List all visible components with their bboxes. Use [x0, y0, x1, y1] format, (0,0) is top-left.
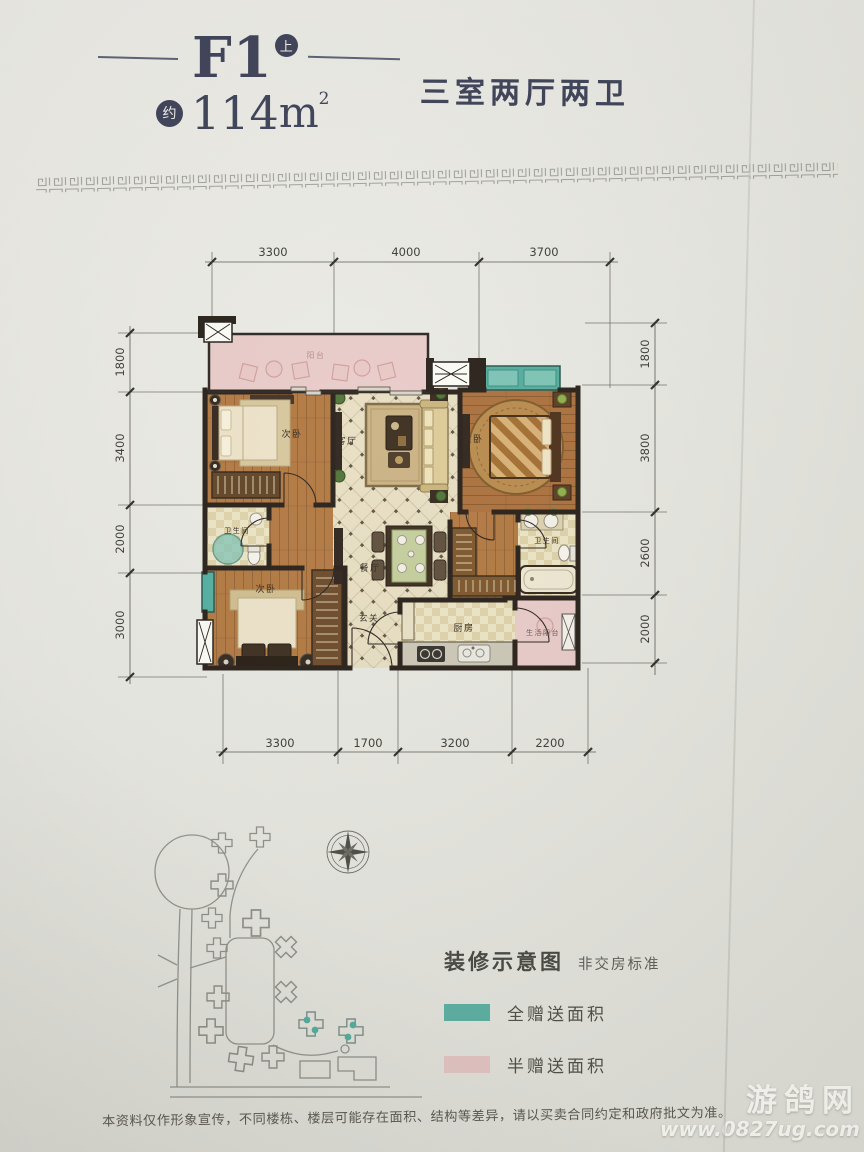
dim-right-2: 3800 [638, 433, 652, 462]
dim-right-1: 1800 [638, 339, 652, 368]
dim-left-4: 3000 [113, 610, 127, 639]
label-bath-left: 卫生间 [224, 526, 250, 535]
dim-left-2: 3400 [113, 433, 127, 462]
legend: 装修示意图 非交房标准 全赠送面积 半赠送面积 [444, 946, 661, 1104]
watermark-site-url: www.0827ug.com [660, 1118, 860, 1140]
dim-top-1: 3300 [258, 245, 287, 259]
label-bath-right: 卫生间 [534, 536, 560, 545]
dim-right-3: 2600 [638, 538, 652, 567]
label-master: 主卧 [462, 433, 483, 445]
flyer-page: F1 上 约 114 m 2 三室两厅两卫 [0, 0, 864, 1152]
legend-item-full-gift: 全赠送面积 [444, 1000, 661, 1025]
highlighted-buildings [299, 1012, 363, 1043]
dim-bottom-3: 3200 [440, 736, 469, 750]
legend-item-label: 半赠送面积 [507, 1052, 607, 1077]
legend-subtitle: 非交房标准 [578, 953, 661, 974]
full-gift-swatch [444, 1004, 490, 1021]
legend-title: 装修示意图 [444, 946, 564, 976]
label-foyer: 玄关 [359, 613, 379, 624]
half-gift-swatch [444, 1056, 490, 1073]
label-service-balcony: 生活阳台 [526, 628, 560, 637]
watermark-site-name: 游鸽网 [660, 1084, 860, 1118]
label-bedroom-bottom: 次卧 [255, 583, 276, 595]
balcony-floor [209, 334, 428, 392]
left-gift-strip [202, 572, 214, 612]
dim-left-1: 1800 [113, 347, 127, 376]
dim-bottom-4: 2200 [535, 736, 564, 750]
meander-border [36, 162, 838, 192]
dim-bottom-2: 1700 [353, 736, 382, 750]
legend-header: 装修示意图 非交房标准 [444, 946, 661, 976]
legend-item-half-gift: 半赠送面积 [444, 1052, 661, 1077]
floor-plan-canvas: 3300 4000 3700 3300 1700 3200 2200 1800 … [0, 0, 864, 1152]
label-kitchen: 厨房 [453, 622, 474, 634]
dim-top-2: 4000 [391, 245, 420, 259]
label-bedroom-top: 次卧 [281, 428, 302, 440]
compass-icon [327, 831, 369, 873]
label-balcony: 阳台 [307, 350, 326, 360]
label-living: 客厅 [336, 435, 357, 447]
dim-bottom-1: 3300 [265, 736, 294, 750]
dim-left-3: 2000 [113, 524, 127, 553]
legend-item-label: 全赠送面积 [507, 1000, 607, 1025]
dim-top-3: 3700 [529, 245, 558, 259]
watermark: 游鸽网 www.0827ug.com [660, 1084, 860, 1140]
dim-right-4: 2000 [638, 614, 652, 643]
label-dining: 餐厅 [359, 562, 380, 574]
site-plan [155, 827, 422, 1097]
